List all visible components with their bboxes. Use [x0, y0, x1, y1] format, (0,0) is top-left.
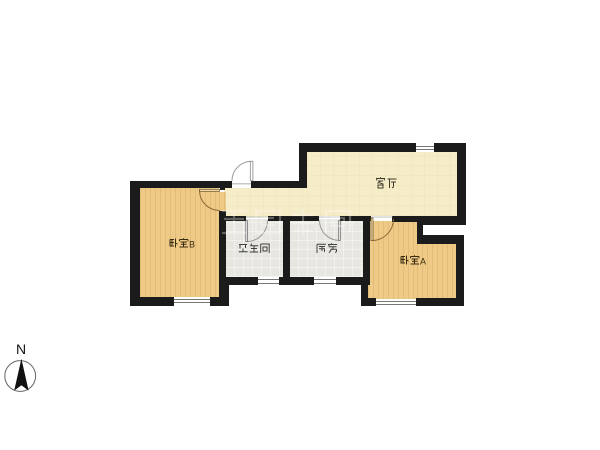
svg-text:N: N	[16, 341, 26, 357]
svg-text:A: A	[420, 257, 426, 267]
svg-text:B: B	[189, 240, 195, 250]
